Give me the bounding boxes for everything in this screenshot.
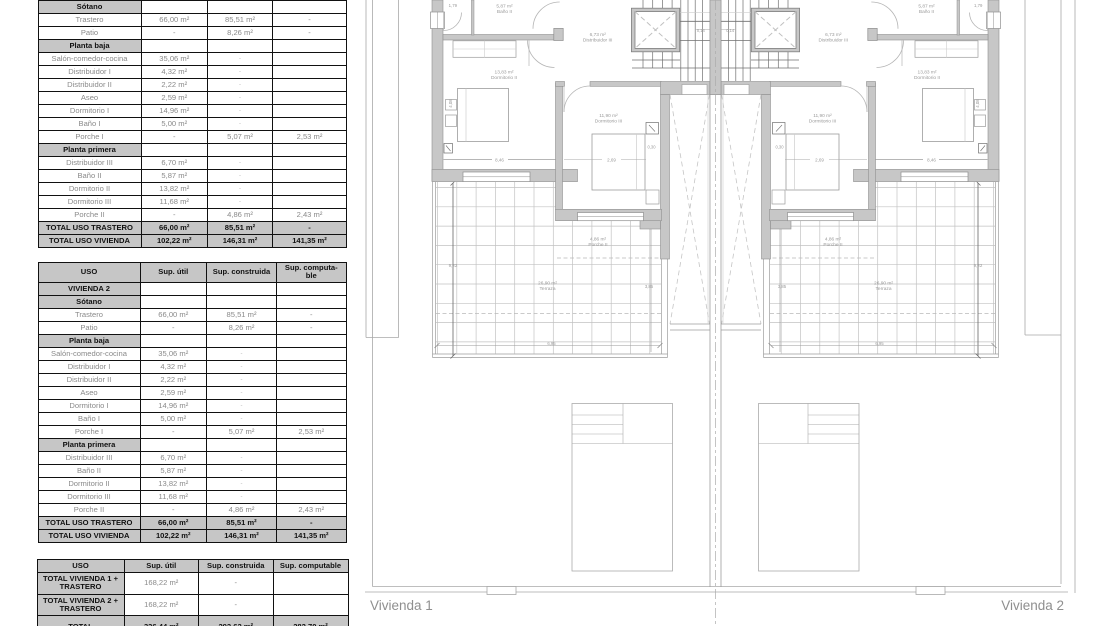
svg-text:4,08: 4,08 [975,99,980,108]
svg-text:Dormitorio II: Dormitorio II [491,75,517,81]
svg-text:Porche II: Porche II [823,242,842,248]
svg-text:0,30: 0,30 [648,145,657,150]
svg-text:Distribuidor III: Distribuidor III [819,38,849,44]
svg-text:8,46: 8,46 [927,158,936,163]
svg-text:Dormitorio III: Dormitorio III [595,119,622,125]
svg-text:9,22: 9,22 [974,263,983,268]
svg-text:26,90 m²: 26,90 m² [538,281,557,287]
svg-text:Distribuidor III: Distribuidor III [583,38,613,44]
svg-text:11,90 m²: 11,90 m² [813,113,832,119]
svg-text:4,86 m²: 4,86 m² [825,237,842,243]
svg-text:Terraza: Terraza [540,286,556,292]
svg-text:2,69: 2,69 [815,158,824,163]
svg-text:4,86 m²: 4,86 m² [590,237,607,243]
svg-text:Porche II: Porche II [588,242,607,248]
svg-text:6,95: 6,95 [875,341,884,346]
svg-text:Dormitorio II: Dormitorio II [914,75,940,81]
svg-text:9,22: 9,22 [449,263,458,268]
svg-text:Terraza: Terraza [876,286,892,292]
svg-text:0,14: 0,14 [697,28,706,33]
svg-text:5,87 m²: 5,87 m² [918,4,935,10]
svg-text:6,73 m²: 6,73 m² [825,32,842,38]
svg-text:Vivienda 2: Vivienda 2 [1001,598,1064,613]
svg-text:1,79: 1,79 [449,3,458,8]
svg-text:2,69: 2,69 [607,158,616,163]
svg-text:13,83 m²: 13,83 m² [918,70,937,76]
svg-text:Baño II: Baño II [497,9,512,15]
svg-text:26,90 m²: 26,90 m² [874,281,893,287]
svg-text:Vivienda 1: Vivienda 1 [370,598,433,613]
svg-text:5,87 m²: 5,87 m² [496,4,513,10]
svg-text:0,30: 0,30 [776,145,785,150]
svg-text:Dormitorio III: Dormitorio III [809,119,836,125]
svg-text:6,95: 6,95 [547,341,556,346]
svg-text:8,46: 8,46 [495,158,504,163]
svg-text:3,85: 3,85 [778,284,787,289]
svg-text:0,14: 0,14 [726,28,735,33]
svg-text:3,85: 3,85 [645,284,654,289]
svg-text:4,08: 4,08 [448,99,453,108]
svg-text:1,79: 1,79 [974,3,983,8]
svg-text:11,90 m²: 11,90 m² [599,113,618,119]
svg-text:6,73 m²: 6,73 m² [590,32,607,38]
svg-text:13,83 m²: 13,83 m² [495,70,514,76]
svg-text:Baño II: Baño II [919,9,934,15]
